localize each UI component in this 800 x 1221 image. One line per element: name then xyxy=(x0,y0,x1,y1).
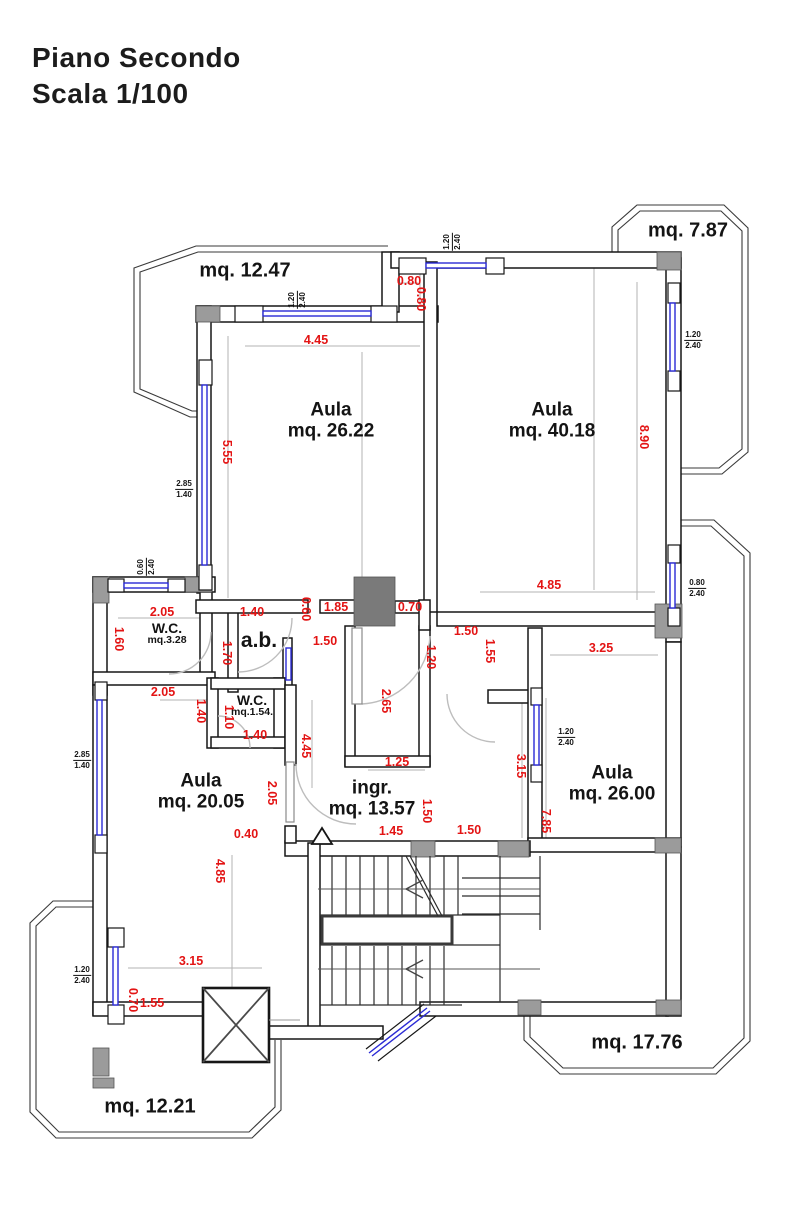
elevator-shaft xyxy=(203,988,300,1062)
window-glass xyxy=(97,263,675,1005)
floor-plan-drawing xyxy=(0,0,800,1221)
stairs-up-arrow xyxy=(312,828,332,844)
floor-plan-page: Piano Secondo Scala 1/100 xyxy=(0,0,800,1221)
